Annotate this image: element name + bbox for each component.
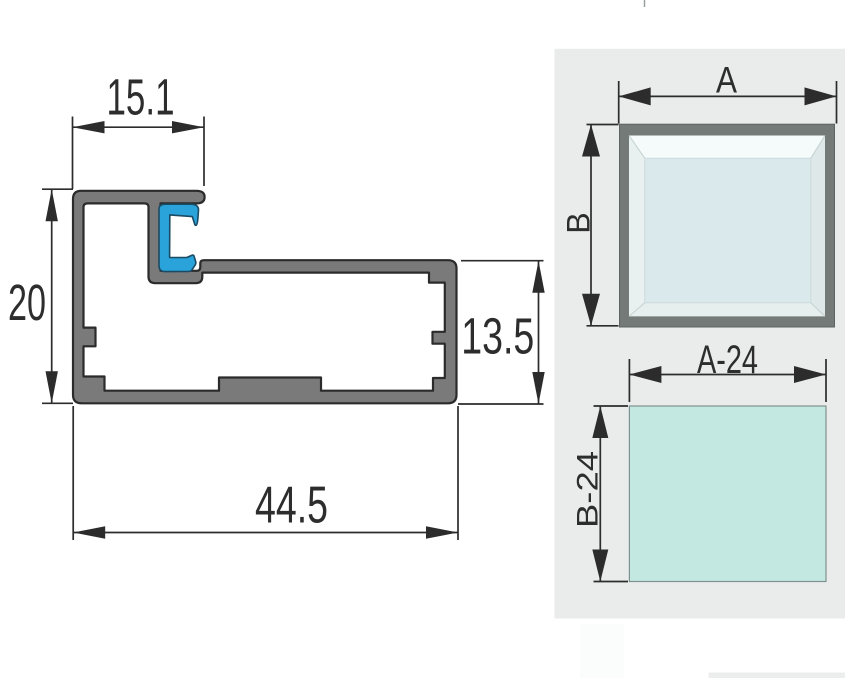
svg-text:20: 20 xyxy=(8,274,46,331)
svg-text:B: B xyxy=(560,212,596,234)
svg-text:B-24: B-24 xyxy=(572,451,605,528)
svg-text:15.1: 15.1 xyxy=(107,69,175,126)
svg-text:A-24: A-24 xyxy=(697,338,758,382)
svg-text:44.5: 44.5 xyxy=(255,477,328,535)
svg-text:A: A xyxy=(716,59,737,100)
svg-text:13.5: 13.5 xyxy=(461,307,534,364)
